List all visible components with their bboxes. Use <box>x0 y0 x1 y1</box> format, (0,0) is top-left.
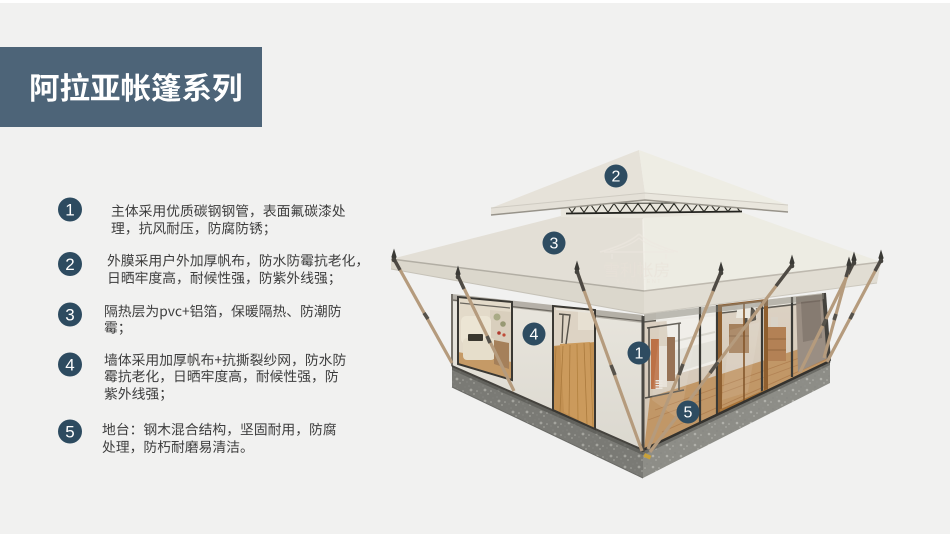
svg-text:5: 5 <box>65 423 74 442</box>
svg-text:3: 3 <box>550 236 559 253</box>
svg-text:2: 2 <box>65 255 74 274</box>
svg-text:4: 4 <box>65 356 74 375</box>
svg-text:3: 3 <box>65 306 74 325</box>
svg-text:1: 1 <box>635 346 644 363</box>
svg-text:4: 4 <box>530 327 539 344</box>
svg-text:5: 5 <box>684 405 693 422</box>
svg-text:1: 1 <box>65 201 74 220</box>
svg-text:XUELI TENT: XUELI TENT <box>616 279 662 285</box>
svg-text:2: 2 <box>612 169 621 186</box>
